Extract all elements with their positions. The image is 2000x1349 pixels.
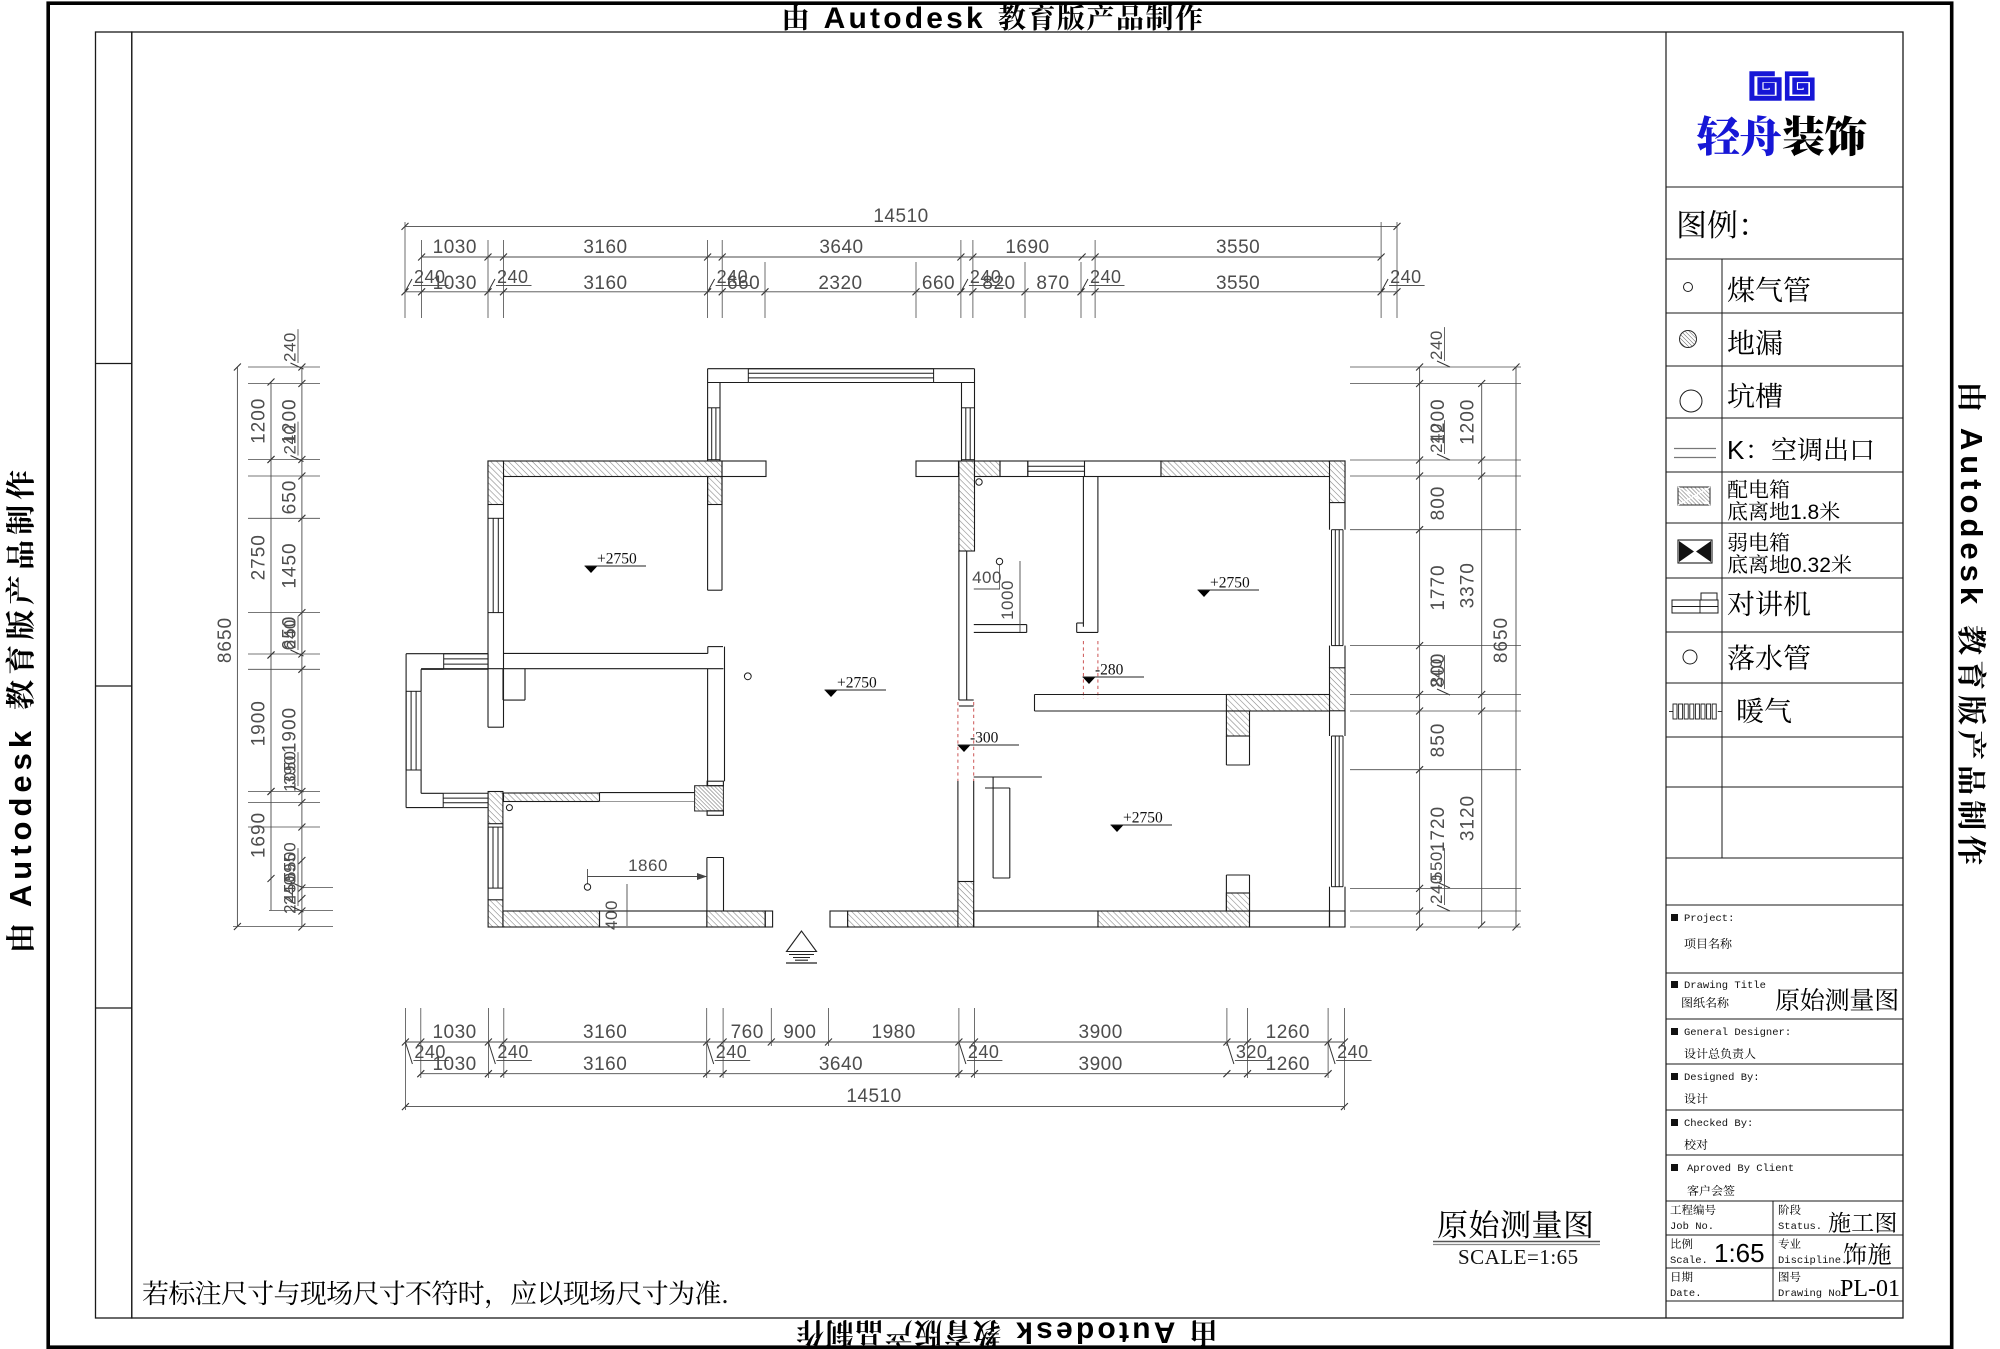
svg-text:Project:: Project: xyxy=(1684,913,1734,925)
svg-text:650: 650 xyxy=(280,480,301,515)
svg-text:660: 660 xyxy=(727,273,760,294)
svg-text:1030: 1030 xyxy=(433,273,477,294)
svg-text:240: 240 xyxy=(1390,267,1422,287)
svg-text:.: . xyxy=(722,1279,729,1309)
svg-text:Drawing Title: Drawing Title xyxy=(1684,980,1766,992)
svg-text:Scale.: Scale. xyxy=(1670,1255,1708,1267)
svg-text:240: 240 xyxy=(1427,423,1446,453)
svg-text:8650: 8650 xyxy=(215,617,236,663)
svg-text:3370: 3370 xyxy=(1457,562,1478,608)
svg-text:Date.: Date. xyxy=(1670,1288,1702,1300)
svg-text:760: 760 xyxy=(731,1022,764,1043)
svg-text:-280: -280 xyxy=(1095,662,1124,679)
svg-text:Designed By:: Designed By: xyxy=(1684,1072,1760,1084)
svg-text:240: 240 xyxy=(281,875,300,905)
svg-text:+2750: +2750 xyxy=(1123,810,1163,827)
svg-text:Drawing No.: Drawing No. xyxy=(1778,1288,1847,1300)
svg-text:240: 240 xyxy=(281,425,300,455)
svg-text:1030: 1030 xyxy=(433,237,477,258)
svg-text:800: 800 xyxy=(1428,486,1449,521)
svg-text:SCALE=1:65: SCALE=1:65 xyxy=(1458,1245,1579,1269)
svg-text:240: 240 xyxy=(968,1042,1000,1062)
svg-text:1000: 1000 xyxy=(998,580,1017,620)
svg-text:2320: 2320 xyxy=(818,273,862,294)
svg-text:320: 320 xyxy=(1236,1042,1268,1062)
svg-text:240: 240 xyxy=(1427,658,1446,688)
svg-text:+2750: +2750 xyxy=(837,675,877,692)
svg-text:Checked By:: Checked By: xyxy=(1684,1118,1753,1130)
svg-text:Autodesk: Autodesk xyxy=(3,726,38,907)
svg-text:1200: 1200 xyxy=(1458,399,1479,445)
svg-text:8650: 8650 xyxy=(1491,617,1512,663)
svg-text:850: 850 xyxy=(1428,723,1449,758)
svg-text:+2750: +2750 xyxy=(1210,575,1250,592)
svg-text:K: K xyxy=(1727,435,1745,465)
svg-text:240: 240 xyxy=(281,619,300,649)
svg-text:1980: 1980 xyxy=(872,1022,916,1043)
svg-text:2750: 2750 xyxy=(248,534,269,580)
svg-text:1900: 1900 xyxy=(248,700,269,746)
svg-text:Aproved By Client: Aproved By Client xyxy=(1687,1163,1794,1175)
svg-text:660: 660 xyxy=(922,273,955,294)
svg-text:240: 240 xyxy=(497,1042,529,1062)
svg-text:Status.: Status. xyxy=(1778,1221,1822,1233)
svg-text:3160: 3160 xyxy=(583,237,627,258)
svg-text:General Designer:: General Designer: xyxy=(1684,1027,1791,1039)
svg-text:1:65: 1:65 xyxy=(1714,1238,1765,1268)
svg-text:870: 870 xyxy=(1036,273,1069,294)
svg-text:1770: 1770 xyxy=(1428,564,1449,610)
svg-text:240: 240 xyxy=(1427,330,1446,360)
svg-text:3160: 3160 xyxy=(583,1022,627,1043)
svg-text:-300: -300 xyxy=(970,730,999,747)
svg-text:1900: 1900 xyxy=(280,707,301,753)
svg-text:14510: 14510 xyxy=(873,206,928,227)
svg-text:3550: 3550 xyxy=(1216,273,1260,294)
svg-text:240: 240 xyxy=(497,267,529,287)
svg-text:900: 900 xyxy=(783,1022,816,1043)
svg-text:3160: 3160 xyxy=(583,273,627,294)
svg-text:820: 820 xyxy=(982,273,1015,294)
svg-text:PL-01: PL-01 xyxy=(1840,1276,1900,1302)
svg-text:3640: 3640 xyxy=(819,237,863,258)
svg-text:3640: 3640 xyxy=(819,1054,863,1075)
svg-text:Discipline.: Discipline. xyxy=(1778,1255,1847,1267)
svg-text:3550: 3550 xyxy=(1216,237,1260,258)
svg-text:3160: 3160 xyxy=(583,1054,627,1075)
svg-text:+2750: +2750 xyxy=(597,551,637,568)
svg-text:240: 240 xyxy=(1427,874,1446,904)
svg-text:3900: 3900 xyxy=(1079,1022,1123,1043)
svg-text:0.32: 0.32 xyxy=(1790,554,1831,577)
svg-text:Job No.: Job No. xyxy=(1670,1221,1714,1233)
svg-text:1690: 1690 xyxy=(249,812,270,858)
svg-text:1720: 1720 xyxy=(1428,806,1449,852)
svg-text:3120: 3120 xyxy=(1458,795,1479,841)
svg-text:1030: 1030 xyxy=(432,1054,476,1075)
svg-text:1030: 1030 xyxy=(432,1022,476,1043)
svg-text:Autodesk: Autodesk xyxy=(824,2,986,35)
svg-text:1200: 1200 xyxy=(249,398,270,444)
svg-text:1860: 1860 xyxy=(628,856,668,875)
svg-text:1260: 1260 xyxy=(1266,1022,1310,1043)
svg-text:390: 390 xyxy=(281,755,300,785)
svg-text:400: 400 xyxy=(602,900,621,930)
svg-text:240: 240 xyxy=(281,332,300,362)
svg-text:1690: 1690 xyxy=(1005,237,1049,258)
svg-text:1450: 1450 xyxy=(280,542,301,588)
svg-text:Autodesk: Autodesk xyxy=(1013,1316,1175,1349)
svg-text:3900: 3900 xyxy=(1079,1054,1123,1075)
svg-text:Autodesk: Autodesk xyxy=(1954,428,1989,609)
svg-text:14510: 14510 xyxy=(846,1086,901,1107)
svg-text:1.8: 1.8 xyxy=(1790,501,1819,524)
svg-text:1260: 1260 xyxy=(1266,1054,1310,1075)
